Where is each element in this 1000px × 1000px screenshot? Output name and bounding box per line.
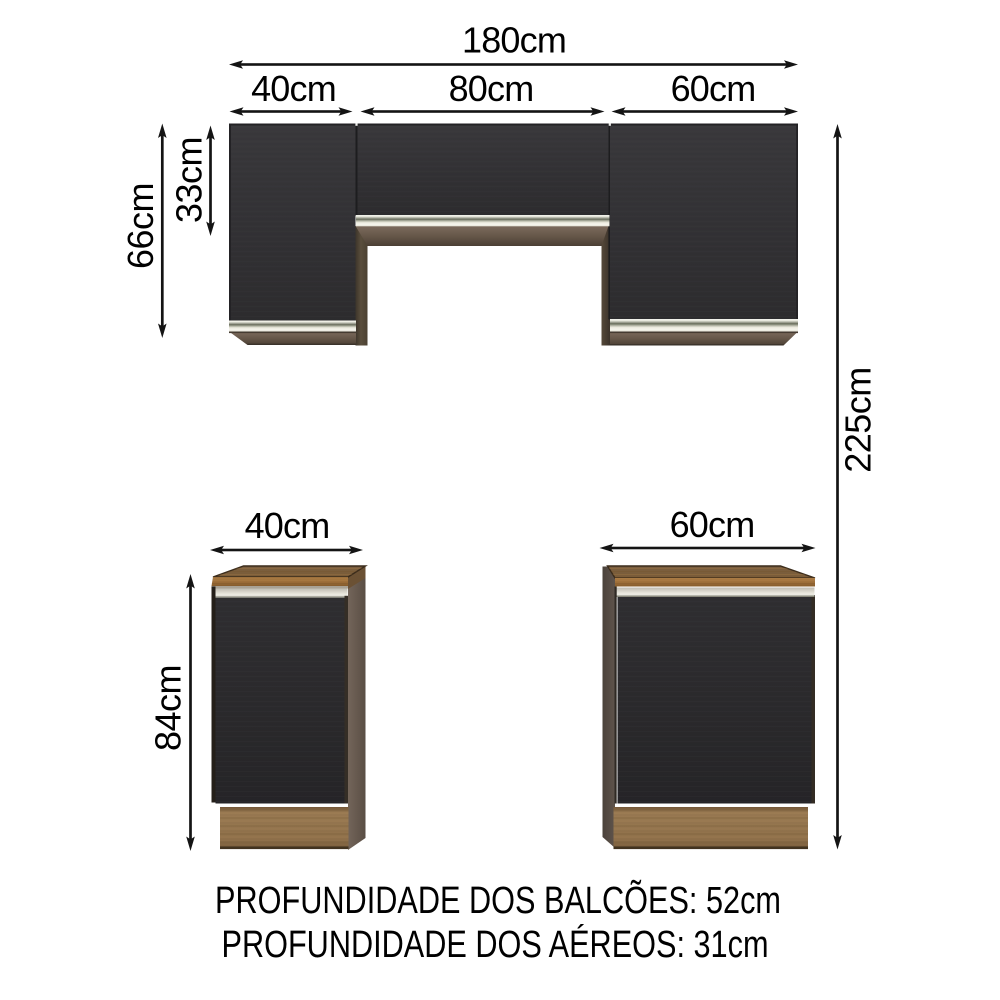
svg-text:40cm: 40cm [245,505,330,546]
svg-text:180cm: 180cm [462,20,566,61]
svg-text:PROFUNDIDADE DOS AÉREOS: 31cm: PROFUNDIDADE DOS AÉREOS: 31cm [222,923,769,966]
svg-text:33cm: 33cm [169,137,210,223]
svg-text:PROFUNDIDADE DOS BALCÕES: 52cm: PROFUNDIDADE DOS BALCÕES: 52cm [215,878,781,922]
svg-text:84cm: 84cm [148,665,189,751]
svg-text:66cm: 66cm [120,183,161,269]
svg-text:225cm: 225cm [838,367,879,473]
svg-text:60cm: 60cm [671,68,756,109]
svg-text:80cm: 80cm [449,68,534,109]
svg-text:60cm: 60cm [670,504,755,545]
svg-text:40cm: 40cm [251,68,336,109]
